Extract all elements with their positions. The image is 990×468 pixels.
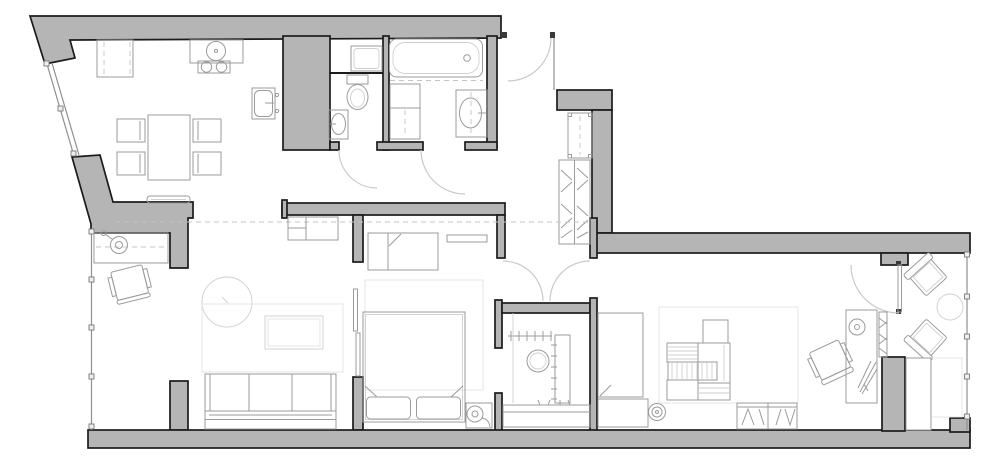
wall-closet-top [502, 303, 590, 313]
window-desk [94, 233, 168, 263]
closet-door-arc-right [550, 261, 590, 301]
wall-corridor-top [592, 233, 970, 253]
bathtub [390, 39, 483, 77]
low-shelf [503, 405, 590, 427]
study [598, 307, 887, 429]
refrigerator-cabinet [97, 40, 133, 77]
balcony-armchair-top [903, 252, 949, 298]
nightstand-lamp [467, 406, 483, 422]
bedroom-sliding-panel-1 [354, 289, 358, 331]
wall-closet-right [590, 298, 597, 432]
bathtub-inner [393, 43, 479, 74]
wall-entry-right [592, 110, 612, 233]
wall-bedroom-right-upper [497, 215, 505, 258]
wardrobe-door-fold [389, 234, 401, 246]
wc-door-arc [339, 150, 377, 188]
bedroom [363, 233, 492, 428]
entrance-jamb-left [502, 32, 507, 38]
wall-bath-bottom-1 [330, 142, 339, 150]
walk-in-closet [503, 313, 590, 427]
area-rug [202, 304, 343, 372]
round-sink-drain [215, 50, 218, 53]
walls [30, 16, 970, 448]
pillow-left [367, 397, 411, 419]
wall-wc-bath-divider [383, 36, 389, 150]
wall-balcony-partition [882, 357, 905, 431]
bed-fold-left [365, 386, 377, 397]
slatted-rack [737, 403, 797, 429]
faucet-valve-1 [275, 93, 278, 96]
living-room [94, 217, 588, 429]
angled-window-glass-inner [52, 63, 79, 155]
kitchen-counter [190, 40, 243, 63]
office-chair-study [806, 338, 857, 387]
tv-bench [288, 217, 338, 240]
planter-box [906, 358, 931, 430]
floor-plan-canvas [0, 0, 990, 468]
mirror-panel [879, 312, 887, 357]
study-door-arc [851, 265, 899, 313]
toilet-bowl-inner [351, 89, 365, 107]
wall-bedroom-left-lower [353, 377, 363, 430]
wall-hall-band [282, 203, 505, 215]
wall-bath-bottom-2 [377, 142, 423, 150]
wall-bottom-band [88, 430, 970, 448]
low-cabinet [598, 399, 648, 427]
study-door-leaf [898, 265, 902, 312]
floor-outlet [649, 404, 666, 421]
wall-entry-top [557, 90, 612, 110]
wardrobe-right [388, 233, 438, 270]
bathtub-drain [464, 55, 471, 62]
faucet-valve-2 [275, 109, 278, 112]
wc [329, 46, 382, 139]
wall-angled-lower-and-nook [72, 155, 193, 268]
lamp-cord [482, 418, 490, 427]
wall-bedroom-right-lower [495, 393, 502, 432]
wall-living-bottom-stub [170, 381, 188, 430]
washing-machine [351, 46, 382, 71]
wardrobe-left [368, 233, 388, 270]
bedroom-sliding-panel-2 [356, 333, 360, 376]
pillow-right [417, 397, 461, 419]
angled-window-mullions [44, 61, 76, 156]
kitchen-dining [97, 40, 279, 203]
closet-door-arc-left [503, 261, 543, 301]
sofa [205, 374, 336, 429]
entrance-jamb-right [550, 32, 555, 38]
wall-bath-bottom-3 [465, 142, 497, 150]
balcony [903, 252, 963, 430]
shelf-tower [555, 335, 570, 403]
study-desk-lamp [849, 319, 865, 335]
wall-kitchen-wc [283, 36, 330, 150]
entrance-door-arc [508, 38, 551, 81]
wall-bath-right [487, 36, 497, 147]
dining-chair [117, 152, 145, 175]
toilet-tank [347, 75, 368, 84]
bathroom [390, 39, 488, 139]
coffee-table [265, 316, 323, 349]
wall-hall-band-cap [282, 200, 287, 218]
dining-chair [193, 152, 221, 175]
bathroom-door-arc [421, 150, 465, 194]
hall-cabinet [598, 313, 643, 397]
balcony-armchair-bottom [903, 317, 949, 363]
wall-hall-right-bar [590, 218, 597, 258]
desk-lamp [111, 237, 128, 254]
wall-shelf [447, 235, 487, 242]
round-side-table [937, 294, 963, 320]
entrance-hall [559, 113, 592, 244]
dining-chairs [117, 119, 221, 175]
office-chair-living [107, 264, 154, 306]
round-sink [207, 42, 226, 61]
shelf-tower-ticks [551, 345, 557, 399]
wall-closet-left [495, 300, 502, 348]
wall-study-door-jamb [881, 253, 908, 265]
bed-fold-right [451, 386, 463, 397]
dining-table [148, 115, 190, 180]
dining-chair [117, 119, 145, 142]
dining-chair [193, 119, 221, 142]
plant [858, 361, 877, 394]
dresser-unit [667, 320, 730, 400]
washing-machine-drum [354, 49, 379, 69]
